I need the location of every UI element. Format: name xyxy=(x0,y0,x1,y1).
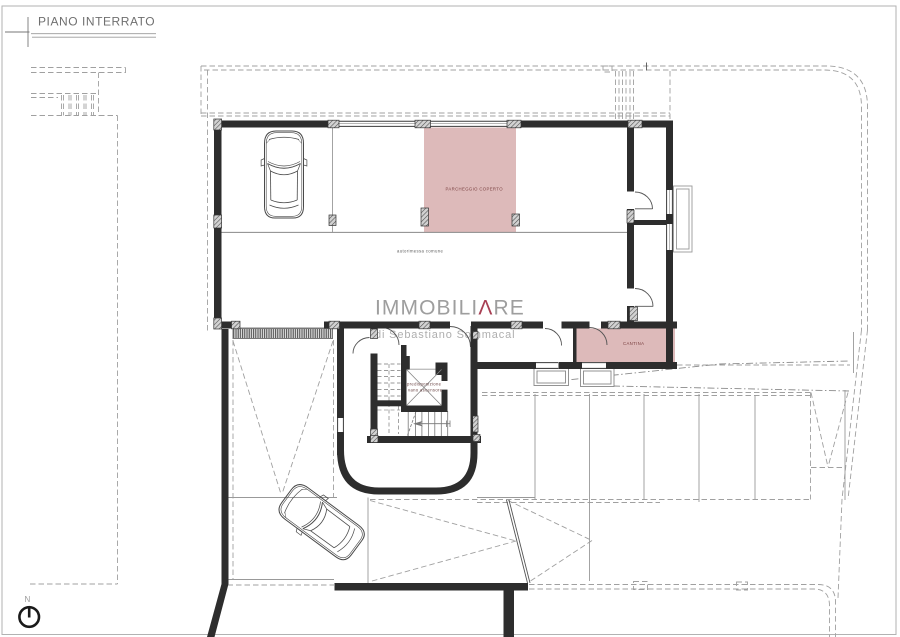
svg-text:CANTINA: CANTINA xyxy=(623,341,644,346)
svg-text:N: N xyxy=(25,595,31,604)
svg-text:IMMOBILIΛRE: IMMOBILIΛRE xyxy=(375,297,525,320)
svg-text:vano ascensore: vano ascensore xyxy=(408,388,443,393)
svg-text:PIANO INTERRATO: PIANO INTERRATO xyxy=(38,15,155,29)
svg-text:autorimessa comune: autorimessa comune xyxy=(397,249,443,254)
svg-text:predisposizione: predisposizione xyxy=(407,382,442,387)
svg-text:PARCHEGGIO COPERTO: PARCHEGGIO COPERTO xyxy=(446,187,504,192)
